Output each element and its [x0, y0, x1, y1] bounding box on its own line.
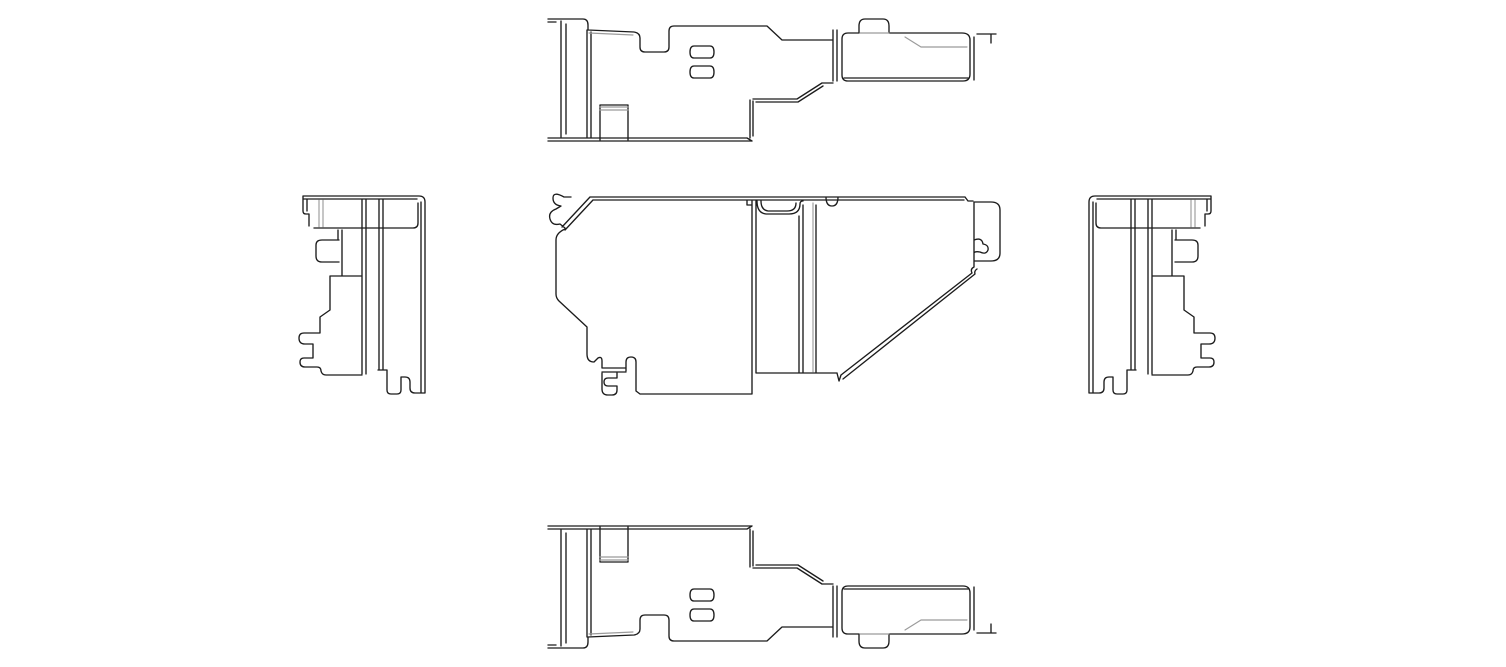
right-side-view-outline — [1089, 196, 1215, 394]
technical-drawing-canvas — [0, 0, 1506, 667]
drawing-page — [0, 0, 1506, 667]
right-side-view-tangent-lines — [1191, 200, 1195, 227]
front-view — [550, 194, 1000, 395]
left-side-view-outline — [299, 196, 425, 394]
left-side-view — [299, 196, 425, 394]
left-side-view-tangent-lines — [319, 200, 323, 227]
top-view-outline — [548, 19, 996, 141]
front-view-outline — [550, 194, 1000, 395]
top-view — [548, 19, 996, 141]
right-side-view — [1089, 196, 1215, 394]
bottom-view-outline — [548, 526, 996, 648]
bottom-view — [548, 526, 996, 648]
